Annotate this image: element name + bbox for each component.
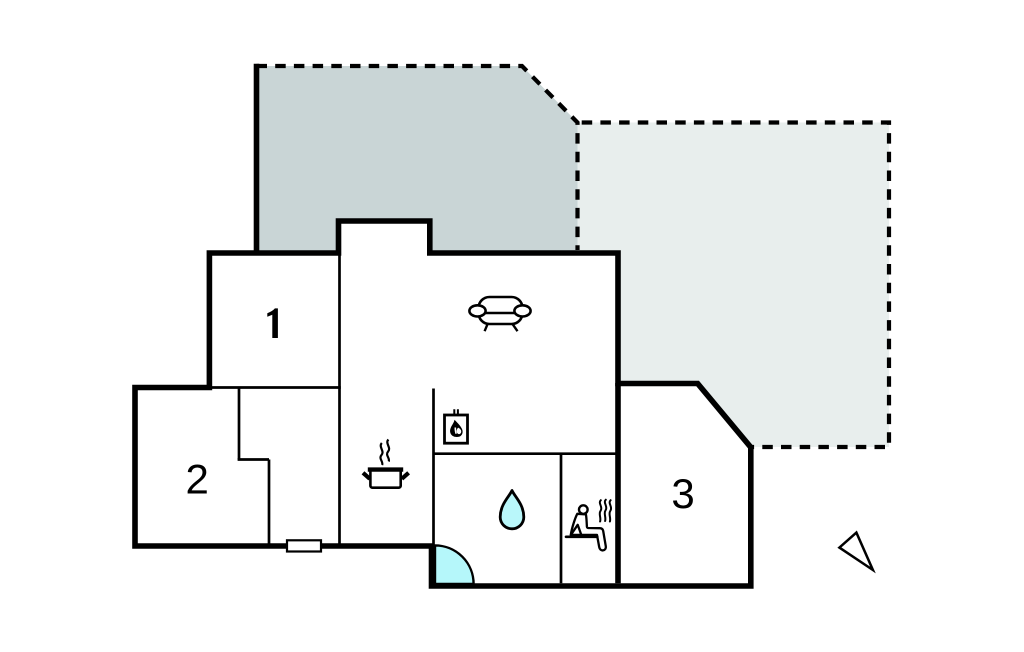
svg-text:2: 2 <box>186 456 209 503</box>
svg-text:3: 3 <box>671 470 694 517</box>
